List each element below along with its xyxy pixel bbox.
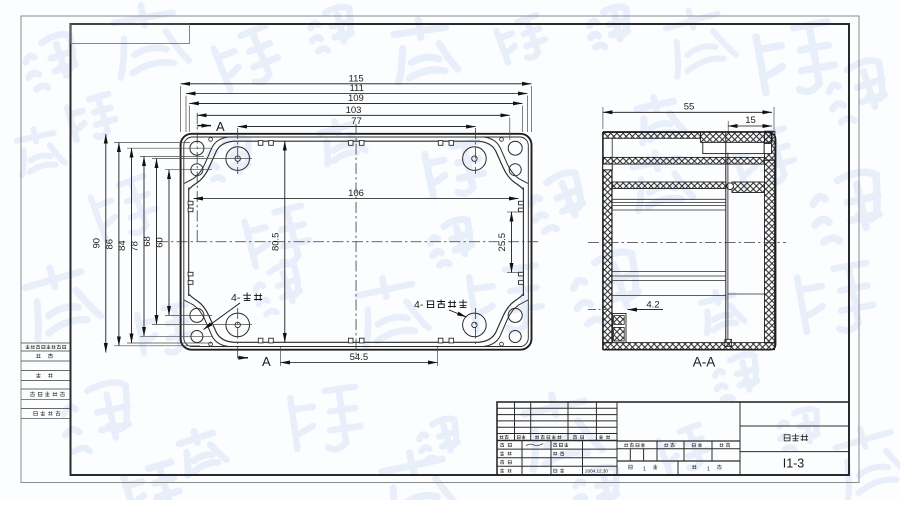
svg-text:A: A xyxy=(262,354,271,369)
svg-text:68: 68 xyxy=(142,236,153,247)
svg-text:54.5: 54.5 xyxy=(350,352,369,363)
svg-text:55: 55 xyxy=(684,102,695,113)
svg-text:1: 1 xyxy=(643,467,646,473)
svg-text:86: 86 xyxy=(104,239,115,250)
svg-text:4-: 4- xyxy=(231,292,241,304)
svg-text:84: 84 xyxy=(117,240,128,251)
svg-text:4-: 4- xyxy=(414,299,424,311)
svg-text:77: 77 xyxy=(351,116,362,127)
svg-text:80.5: 80.5 xyxy=(271,233,282,252)
svg-text:15: 15 xyxy=(745,115,756,126)
svg-text:A-A: A-A xyxy=(693,355,716,370)
svg-text:103: 103 xyxy=(346,105,362,116)
svg-text:25.5: 25.5 xyxy=(497,233,508,252)
svg-text:1: 1 xyxy=(707,467,710,473)
svg-text:60: 60 xyxy=(155,237,166,248)
svg-text:I1-3: I1-3 xyxy=(783,457,805,471)
svg-text:106: 106 xyxy=(348,188,364,199)
svg-text:2004.12.30: 2004.12.30 xyxy=(585,468,608,473)
svg-text:A: A xyxy=(216,119,225,134)
svg-text:78: 78 xyxy=(130,241,141,252)
svg-text:90: 90 xyxy=(91,238,102,249)
svg-text:109: 109 xyxy=(348,93,364,104)
svg-text:4.2: 4.2 xyxy=(646,300,659,311)
